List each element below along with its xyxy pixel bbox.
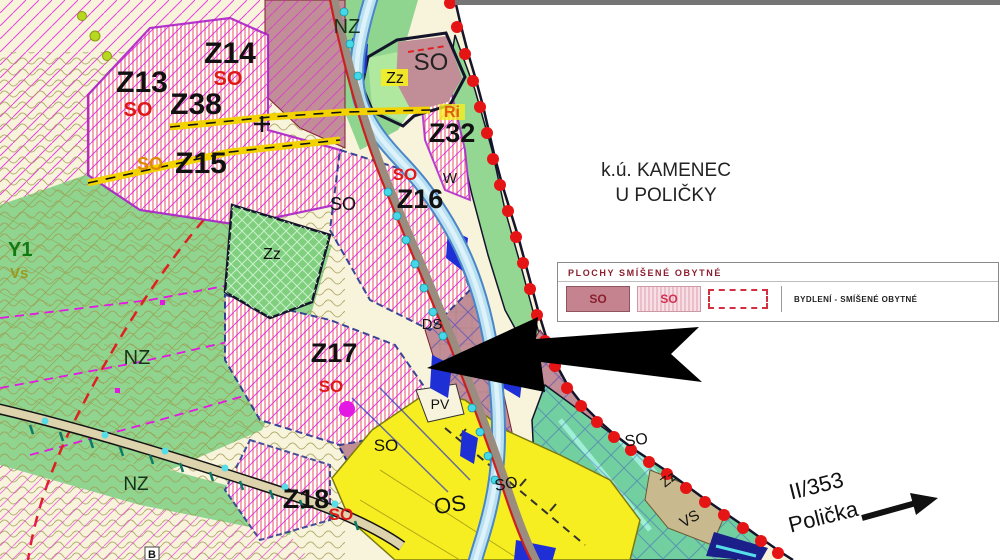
map-label-region-title-2: U POLIČKY [615,184,717,206]
map-label-z38: Z38 [170,88,222,121]
map-label-road-ref: II/353 [786,467,845,505]
map-label-so-top: SO [414,49,449,76]
map-label-nz-left: NZ [124,347,151,369]
legend-swatch-so-solid: SO [566,286,630,312]
map-label-pv: PV [431,396,450,412]
zoning-map-screenshot: NZZ14SOZ13Z38SOSOZ15ZzSORiZ32SOWZ16SOZzY… [0,0,1000,560]
legend-title: PLOCHY SMÍŠENÉ OBYTNÉ [558,263,998,282]
legend-swatch-so-hatched: SO [637,286,701,312]
legend-swatch-so-hatched-label: SO [660,292,677,306]
map-label-zz-top: Zz [386,70,404,87]
map-label-so-mid: SO [330,194,356,214]
map-label-so-sw: SO [374,436,399,455]
policka-direction-arrow [862,493,938,518]
map-label-z16: Z16 [397,184,444,214]
map-label-region-title-1: k.ú. KAMENEC [601,160,731,181]
map-label-so-z18: SO [329,505,354,524]
window-edge-bar [455,0,1000,5]
map-label-z13: Z13 [116,66,168,99]
map-label-y1-left: Y1 [8,239,32,261]
legend-swatch-so-solid-label: SO [589,292,606,306]
map-label-nz-bottom: NZ [123,474,149,495]
map-label-w-river: W [443,170,458,187]
map-label-so-z14: SO [214,68,243,90]
map-label-z14: Z14 [204,37,256,70]
map-label-b-bottom: B [148,549,156,560]
map-label-z17: Z17 [311,338,358,368]
legend-divider [781,286,782,312]
map-label-z18: Z18 [283,484,330,514]
map-label-so-z17: SO [319,377,344,396]
map-label-vs-left: Vs [10,265,28,282]
map-label-zz-mid: Zz [263,246,281,263]
map-label-ds: DS [422,316,443,333]
magenta-point [339,401,355,417]
map-label-so-z13: SO [124,99,153,121]
map-label-os: OS [432,490,467,519]
legend-swatch-so-outline [708,289,768,309]
map-label-z15: Z15 [175,147,227,180]
map-label-so-se: SO [624,431,649,451]
map-label-so-z16: SO [393,165,418,184]
legend-description: BYDLENÍ - SMÍŠENÉ OBYTNÉ [794,295,917,304]
map-label-so-z15: SO [137,154,163,174]
map-label-nz-top: NZ [334,16,361,38]
map-label-z32: Z32 [429,118,476,148]
legend-panel: PLOCHY SMÍŠENÉ OBYTNÉ SO SO BYDLENÍ - SM… [557,262,999,322]
